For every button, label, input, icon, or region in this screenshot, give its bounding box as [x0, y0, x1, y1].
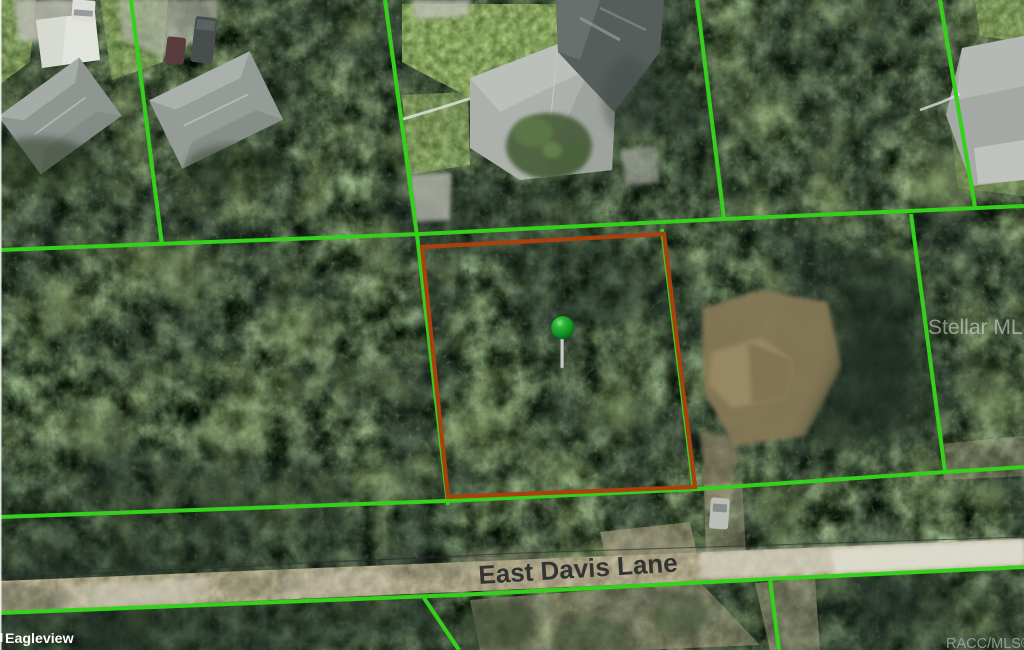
svg-text:Eagleview: Eagleview [5, 631, 75, 647]
svg-text:RACC/MLS©: RACC/MLS© [946, 636, 1024, 650]
svg-text:Stellar MLS: Stellar MLS [928, 316, 1024, 339]
